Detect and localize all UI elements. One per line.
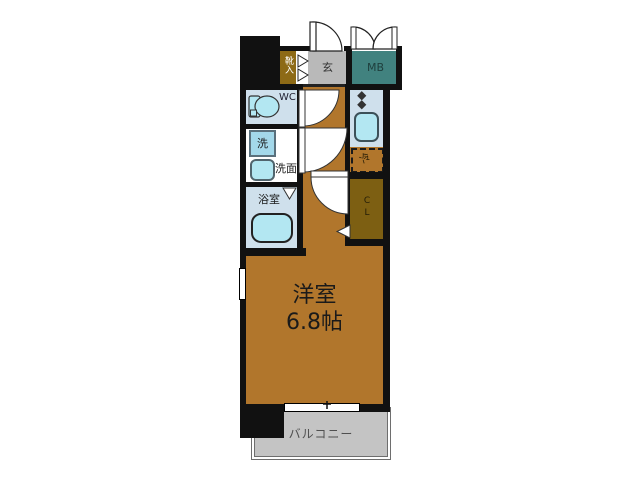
wall-entrance-mb-divider [346, 46, 352, 90]
balcony-window [284, 403, 360, 412]
meter-box-label: MB [367, 62, 384, 73]
wall-left-upper [240, 86, 246, 268]
main-room-name: 洋室 [246, 282, 383, 309]
mb-door-opening [352, 46, 396, 51]
bathroom-label: 浴室 [258, 194, 280, 205]
wall-pillar-top-left [240, 36, 280, 86]
wall-pillar-bottom-left [240, 404, 284, 438]
entrance-door-opening [311, 46, 344, 51]
wall-hall-left [297, 90, 303, 250]
shoe-cabinet-label: 靴入 [283, 56, 292, 74]
main-room-size: 6.8帖 [246, 309, 383, 336]
wall-entry-row-right [345, 84, 402, 90]
wall-entry-row-left [240, 84, 303, 90]
wall-mb-right [396, 46, 402, 90]
wc-label: WC [279, 93, 296, 103]
wall-kitchen-left [345, 90, 350, 180]
balcony-label: バルコニー [289, 428, 354, 440]
entrance-label: 玄 [322, 62, 333, 73]
shoe-cabinet-door-panel [296, 51, 308, 84]
wall-wc-washroom-divider [240, 124, 303, 129]
main-room-label-block: 洋室 6.8帖 [246, 282, 383, 336]
washroom-label: 洗面 [275, 163, 297, 174]
washing-machine-label: 洗 [257, 138, 268, 149]
closet-label: CL [362, 196, 371, 220]
bathtub [251, 213, 293, 243]
hallway-floor [297, 87, 350, 250]
wall-closet-left [345, 180, 350, 246]
kitchen-sink [354, 112, 379, 142]
floor-plan: バルコニー 洗 [0, 0, 640, 480]
wall-washroom-bath-divider [240, 182, 303, 187]
washing-machine: 洗 [249, 130, 276, 157]
entrance-step-edge [303, 84, 345, 87]
wall-right [383, 84, 390, 412]
washbasin [250, 159, 275, 181]
side-window [239, 268, 246, 300]
